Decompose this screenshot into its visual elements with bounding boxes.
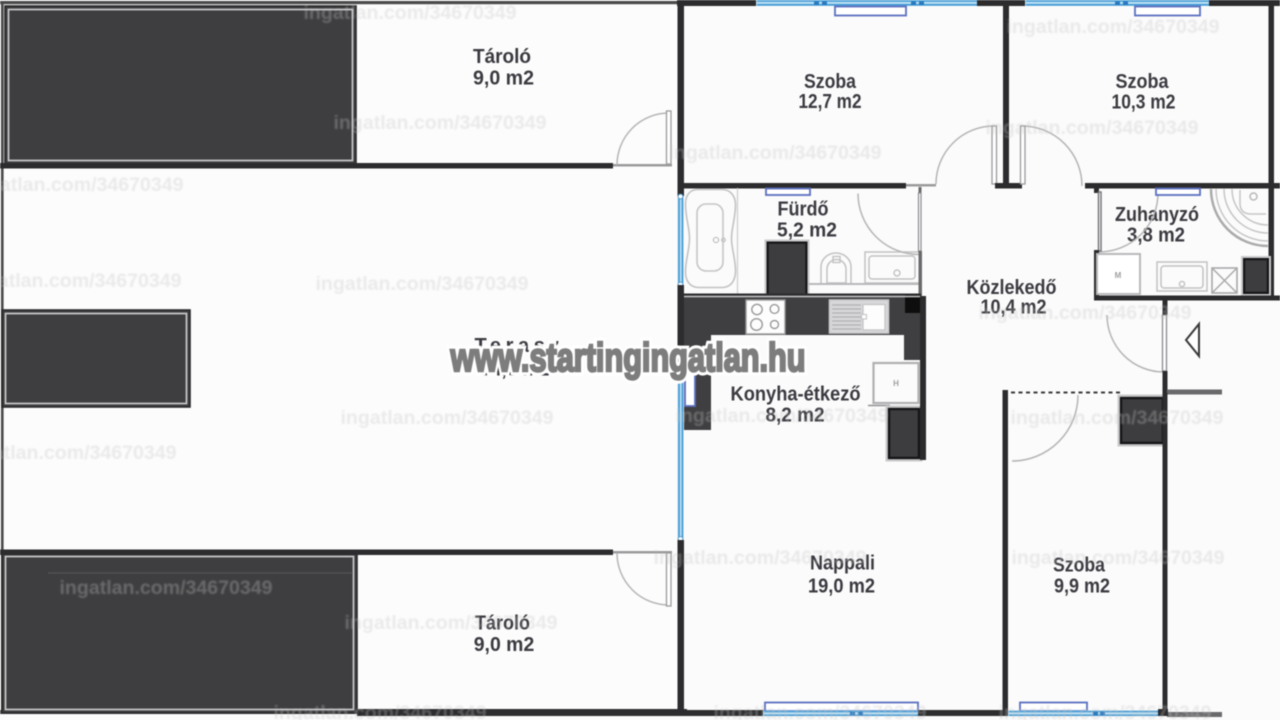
svg-text:ingatlan.com/34670349: ingatlan.com/34670349 <box>0 443 177 464</box>
svg-text:ingatlan.com/34670349: ingatlan.com/34670349 <box>274 703 487 720</box>
svg-text:ingatlan.com/34670349: ingatlan.com/34670349 <box>334 113 547 134</box>
svg-text:ingatlan.com/34670349: ingatlan.com/34670349 <box>0 175 184 196</box>
svg-text:10,3 m2: 10,3 m2 <box>1112 92 1176 114</box>
svg-text:Szoba: Szoba <box>1116 71 1170 93</box>
svg-text:ingatlan.com/34670349: ingatlan.com/34670349 <box>316 274 529 295</box>
svg-text:Szoba: Szoba <box>804 71 857 93</box>
svg-text:ingatlan.com/34670349: ingatlan.com/34670349 <box>60 578 273 599</box>
svg-text:Tároló: Tároló <box>473 46 531 68</box>
svg-text:ingatlan.com/34670349: ingatlan.com/34670349 <box>1012 548 1225 569</box>
svg-text:ingatlan.com/34670349: ingatlan.com/34670349 <box>654 548 867 569</box>
svg-text:www.startingingatlan.hu: www.startingingatlan.hu <box>450 336 806 380</box>
svg-text:5,2 m2: 5,2 m2 <box>777 220 837 242</box>
svg-text:3,8 m2: 3,8 m2 <box>1127 225 1185 247</box>
svg-text:12,7 m2: 12,7 m2 <box>799 91 862 113</box>
svg-text:ingatlan.com/34670349: ingatlan.com/34670349 <box>345 613 558 634</box>
svg-text:H: H <box>893 379 899 388</box>
svg-text:19,0 m2: 19,0 m2 <box>808 576 875 598</box>
svg-text:ingatlan.com/34670349: ingatlan.com/34670349 <box>986 118 1199 139</box>
svg-text:ingatlan.com/34670349: ingatlan.com/34670349 <box>676 406 889 427</box>
svg-text:ingatlan.com/34670349: ingatlan.com/34670349 <box>341 408 554 429</box>
svg-text:9,9 m2: 9,9 m2 <box>1054 576 1110 598</box>
svg-text:ingatlan.com/34670349: ingatlan.com/34670349 <box>1011 408 1224 429</box>
svg-text:ingatlan.com/34670349: ingatlan.com/34670349 <box>304 3 517 24</box>
svg-text:ingatlan.com/34670349: ingatlan.com/34670349 <box>714 703 927 720</box>
svg-text:M: M <box>1115 271 1122 280</box>
svg-text:ingatlan.com/34670349: ingatlan.com/34670349 <box>669 143 882 164</box>
svg-text:ingatlan.com/34670349: ingatlan.com/34670349 <box>1007 17 1220 38</box>
svg-text:ingatlan.com/34670349: ingatlan.com/34670349 <box>0 271 182 292</box>
svg-text:Konyha-étkező: Konyha-étkező <box>731 384 861 406</box>
svg-text:ingatlan.com/34670349: ingatlan.com/34670349 <box>979 303 1192 324</box>
svg-text:Fürdő: Fürdő <box>778 199 829 221</box>
svg-text:9,0 m2: 9,0 m2 <box>474 634 535 656</box>
svg-text:9,0 m2: 9,0 m2 <box>473 68 534 90</box>
svg-text:ingatlan.com/34670349: ingatlan.com/34670349 <box>999 703 1212 720</box>
